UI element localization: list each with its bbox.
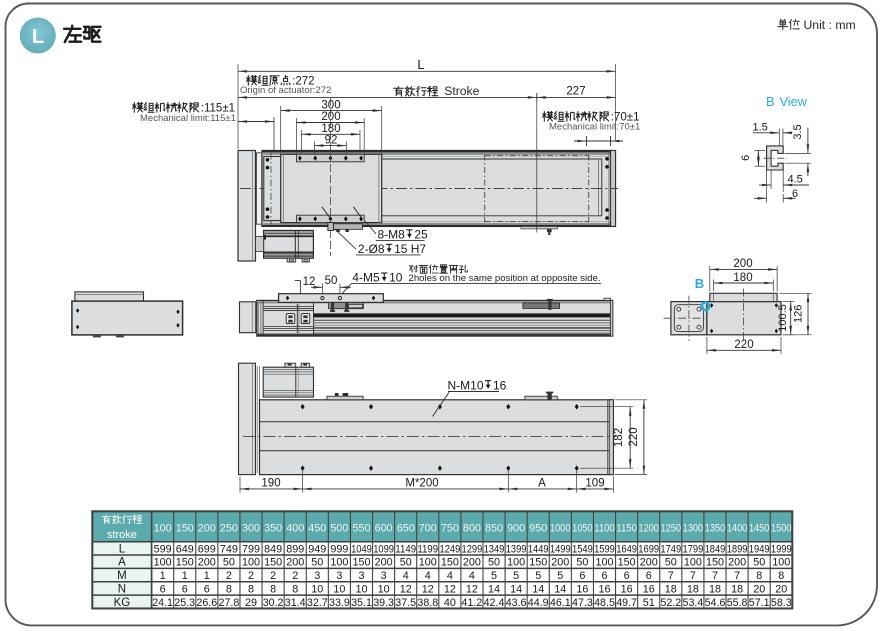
svg-text:1.5: 1.5 — [753, 122, 768, 134]
svg-text:10: 10 — [389, 271, 403, 285]
svg-text:1349: 1349 — [484, 543, 505, 555]
svg-text:6: 6 — [740, 155, 752, 161]
svg-text:5: 5 — [491, 570, 497, 582]
svg-text:5: 5 — [535, 570, 541, 582]
svg-text:2holes on the same position at: 2holes on the same position at opposite … — [409, 273, 601, 284]
svg-text:A: A — [538, 477, 546, 489]
svg-text:50: 50 — [325, 275, 338, 287]
svg-text:1399: 1399 — [506, 543, 527, 555]
svg-text:180: 180 — [321, 123, 340, 135]
svg-text:849: 849 — [264, 543, 282, 555]
svg-text:1249: 1249 — [440, 543, 461, 555]
svg-text:1749: 1749 — [660, 543, 681, 555]
svg-text:227: 227 — [566, 85, 585, 97]
svg-text:1849: 1849 — [705, 543, 726, 555]
svg-text:1649: 1649 — [616, 543, 637, 555]
svg-text:6: 6 — [624, 570, 630, 582]
svg-text:200: 200 — [321, 111, 340, 123]
svg-text:16: 16 — [576, 583, 588, 595]
svg-text:4-M5: 4-M5 — [352, 271, 380, 285]
svg-text:150: 150 — [176, 557, 194, 569]
svg-text:126: 126 — [792, 305, 804, 323]
svg-text:47.3: 47.3 — [572, 597, 593, 609]
svg-text:1: 1 — [160, 570, 166, 582]
svg-text:57.1: 57.1 — [749, 597, 770, 609]
svg-text:50: 50 — [311, 557, 323, 569]
svg-text:stroke: stroke — [107, 529, 137, 541]
svg-text:38.8: 38.8 — [417, 597, 438, 609]
svg-text:7: 7 — [734, 570, 740, 582]
svg-text:12: 12 — [422, 583, 434, 595]
svg-text:200: 200 — [733, 258, 752, 270]
svg-text:5: 5 — [557, 570, 563, 582]
svg-text:200: 200 — [551, 557, 569, 569]
svg-text:1100: 1100 — [594, 523, 615, 535]
svg-text:25.3: 25.3 — [174, 597, 195, 609]
svg-text:6: 6 — [646, 570, 652, 582]
svg-text:10: 10 — [378, 583, 390, 595]
svg-text:Mechanical limit:70±1: Mechanical limit:70±1 — [549, 121, 640, 132]
svg-text:14: 14 — [532, 583, 544, 595]
svg-text:18: 18 — [731, 583, 743, 595]
svg-text:1099: 1099 — [373, 543, 394, 555]
svg-text:3: 3 — [314, 570, 320, 582]
svg-text:100.5: 100.5 — [777, 304, 789, 332]
svg-text:37.5: 37.5 — [395, 597, 416, 609]
svg-text:2: 2 — [292, 570, 298, 582]
svg-text:799: 799 — [242, 543, 260, 555]
svg-text:200: 200 — [728, 557, 746, 569]
svg-text:31.4: 31.4 — [285, 597, 306, 609]
svg-text:1500: 1500 — [771, 523, 792, 535]
svg-text:1699: 1699 — [638, 543, 659, 555]
svg-text:6: 6 — [204, 583, 210, 595]
svg-text:8: 8 — [292, 583, 298, 595]
svg-text:54.6: 54.6 — [705, 597, 726, 609]
svg-text:50: 50 — [576, 557, 588, 569]
svg-text:KG: KG — [114, 597, 131, 609]
svg-text:150: 150 — [529, 557, 547, 569]
svg-text:1799: 1799 — [683, 543, 704, 555]
svg-text:L: L — [417, 57, 424, 72]
svg-text:300: 300 — [242, 523, 260, 535]
svg-text:18: 18 — [665, 583, 677, 595]
svg-text:200: 200 — [375, 557, 393, 569]
svg-text:1: 1 — [204, 570, 210, 582]
svg-text:6: 6 — [182, 583, 188, 595]
svg-text:50: 50 — [488, 557, 500, 569]
svg-text:150: 150 — [264, 557, 282, 569]
svg-text:8: 8 — [226, 583, 232, 595]
svg-text:Stroke: Stroke — [444, 84, 479, 98]
svg-text:100: 100 — [772, 557, 790, 569]
svg-text:41.2: 41.2 — [462, 597, 483, 609]
svg-text:6: 6 — [601, 570, 607, 582]
svg-text:42.4: 42.4 — [484, 597, 505, 609]
svg-text:182: 182 — [613, 428, 625, 447]
svg-text:200: 200 — [286, 557, 304, 569]
svg-text:999: 999 — [330, 543, 348, 555]
svg-text:699: 699 — [198, 543, 216, 555]
svg-text:50: 50 — [665, 557, 677, 569]
svg-text:1450: 1450 — [749, 523, 770, 535]
svg-text:7: 7 — [690, 570, 696, 582]
svg-text:650: 650 — [397, 523, 415, 535]
svg-text:B: B — [695, 276, 704, 291]
svg-text:300: 300 — [321, 99, 340, 111]
svg-text:1899: 1899 — [727, 543, 748, 555]
svg-text:N: N — [118, 583, 126, 595]
svg-text:150: 150 — [352, 557, 370, 569]
svg-text:52.2: 52.2 — [660, 597, 681, 609]
svg-text:N-M10: N-M10 — [448, 378, 484, 392]
svg-text:150: 150 — [618, 557, 636, 569]
svg-text:6: 6 — [579, 570, 585, 582]
svg-text:3: 3 — [381, 570, 387, 582]
svg-text:1599: 1599 — [594, 543, 615, 555]
svg-text:Origin of actuator:272: Origin of actuator:272 — [240, 85, 331, 96]
svg-text:749: 749 — [220, 543, 238, 555]
svg-text:100: 100 — [507, 557, 525, 569]
svg-text:12: 12 — [400, 583, 412, 595]
svg-text:14: 14 — [488, 583, 500, 595]
svg-text:100: 100 — [242, 557, 260, 569]
svg-text:A: A — [118, 557, 126, 569]
svg-text:250: 250 — [220, 523, 238, 535]
svg-text:55.8: 55.8 — [727, 597, 748, 609]
svg-text:View: View — [780, 94, 808, 109]
svg-text:8: 8 — [270, 583, 276, 595]
svg-text:40: 40 — [444, 597, 456, 609]
svg-text:46.1: 46.1 — [550, 597, 571, 609]
svg-text:Unit : mm: Unit : mm — [804, 18, 856, 32]
svg-text:24.1: 24.1 — [152, 597, 173, 609]
svg-text:800: 800 — [463, 523, 481, 535]
svg-text:3: 3 — [336, 570, 342, 582]
svg-text:1: 1 — [182, 570, 188, 582]
svg-text:850: 850 — [485, 523, 503, 535]
svg-text:100: 100 — [595, 557, 613, 569]
svg-text:29: 29 — [245, 597, 257, 609]
svg-text:16: 16 — [643, 583, 655, 595]
svg-text:2: 2 — [270, 570, 276, 582]
svg-text:109: 109 — [585, 477, 604, 489]
svg-text:M: M — [117, 570, 127, 582]
svg-text:15 H7: 15 H7 — [394, 242, 426, 256]
svg-text:50: 50 — [223, 557, 235, 569]
svg-text:M*200: M*200 — [405, 477, 438, 489]
svg-text:1549: 1549 — [572, 543, 593, 555]
svg-text:1049: 1049 — [351, 543, 372, 555]
svg-text:14: 14 — [510, 583, 522, 595]
svg-text:L: L — [119, 543, 126, 555]
svg-text:35.1: 35.1 — [351, 597, 372, 609]
svg-text:200: 200 — [198, 523, 216, 535]
svg-text:1949: 1949 — [749, 543, 770, 555]
svg-text:1999: 1999 — [771, 543, 792, 555]
svg-text:18: 18 — [687, 583, 699, 595]
svg-text:220: 220 — [734, 339, 753, 351]
svg-text:1050: 1050 — [572, 523, 593, 535]
svg-text:33.9: 33.9 — [329, 597, 350, 609]
svg-text:100: 100 — [330, 557, 348, 569]
svg-text:1400: 1400 — [727, 523, 748, 535]
svg-text:750: 750 — [441, 523, 459, 535]
svg-text:7: 7 — [668, 570, 674, 582]
svg-text:L: L — [32, 26, 44, 48]
svg-text:18: 18 — [709, 583, 721, 595]
svg-text:26.6: 26.6 — [196, 597, 217, 609]
svg-text:44.9: 44.9 — [528, 597, 549, 609]
svg-text:6: 6 — [792, 188, 798, 200]
svg-text:16: 16 — [598, 583, 610, 595]
svg-text:1200: 1200 — [638, 523, 659, 535]
svg-text:10: 10 — [333, 583, 345, 595]
svg-text:4: 4 — [425, 570, 431, 582]
svg-text:8: 8 — [248, 583, 254, 595]
svg-text:39.3: 39.3 — [373, 597, 394, 609]
svg-text:B: B — [766, 94, 775, 109]
svg-text:10: 10 — [311, 583, 323, 595]
svg-text:50: 50 — [400, 557, 412, 569]
svg-text:1250: 1250 — [661, 523, 682, 535]
svg-text:600: 600 — [375, 523, 393, 535]
svg-text:16: 16 — [493, 378, 507, 392]
svg-text:899: 899 — [286, 543, 304, 555]
svg-text:49.7: 49.7 — [616, 597, 637, 609]
svg-text:700: 700 — [419, 523, 437, 535]
svg-text:53.4: 53.4 — [683, 597, 704, 609]
svg-text:8: 8 — [756, 570, 762, 582]
svg-text:150: 150 — [706, 557, 724, 569]
svg-text:7: 7 — [712, 570, 718, 582]
svg-text:20: 20 — [775, 583, 787, 595]
svg-text:649: 649 — [176, 543, 194, 555]
svg-text:1000: 1000 — [550, 523, 571, 535]
svg-text:Mechanical limit:115±1: Mechanical limit:115±1 — [140, 113, 236, 124]
svg-text:14: 14 — [554, 583, 566, 595]
svg-text:2: 2 — [248, 570, 254, 582]
svg-text:200: 200 — [463, 557, 481, 569]
svg-text:58.3: 58.3 — [771, 597, 792, 609]
svg-text:51: 51 — [643, 597, 655, 609]
svg-text:599: 599 — [154, 543, 172, 555]
svg-text:220: 220 — [628, 427, 640, 446]
svg-text:350: 350 — [264, 523, 282, 535]
svg-text:200: 200 — [198, 557, 216, 569]
svg-text:1499: 1499 — [550, 543, 571, 555]
svg-text:4: 4 — [447, 570, 453, 582]
svg-text:10: 10 — [355, 583, 367, 595]
svg-text:16: 16 — [621, 583, 633, 595]
svg-text:12: 12 — [466, 583, 478, 595]
svg-text:8-M8: 8-M8 — [378, 228, 406, 242]
svg-text:6: 6 — [160, 583, 166, 595]
svg-text:20: 20 — [753, 583, 765, 595]
svg-text:48.5: 48.5 — [594, 597, 615, 609]
svg-text:400: 400 — [286, 523, 304, 535]
svg-text:3.5: 3.5 — [792, 124, 804, 139]
svg-text:550: 550 — [352, 523, 370, 535]
svg-text:3: 3 — [358, 570, 364, 582]
svg-text:450: 450 — [308, 523, 326, 535]
svg-text:8: 8 — [778, 570, 784, 582]
svg-text:4: 4 — [469, 570, 475, 582]
svg-text:200: 200 — [640, 557, 658, 569]
svg-text:32.7: 32.7 — [307, 597, 328, 609]
svg-text:27.8: 27.8 — [219, 597, 240, 609]
svg-text:1299: 1299 — [462, 543, 483, 555]
svg-text:1150: 1150 — [616, 523, 637, 535]
svg-text:43.6: 43.6 — [506, 597, 527, 609]
svg-text:900: 900 — [507, 523, 525, 535]
svg-text:100: 100 — [154, 557, 172, 569]
svg-text:180: 180 — [733, 272, 752, 284]
svg-text:4: 4 — [403, 570, 409, 582]
svg-text:190: 190 — [261, 477, 280, 489]
svg-text:1350: 1350 — [705, 523, 726, 535]
svg-text:1149: 1149 — [395, 543, 416, 555]
svg-text:100: 100 — [154, 523, 172, 535]
svg-text:500: 500 — [330, 523, 348, 535]
svg-text:100: 100 — [419, 557, 437, 569]
svg-text:950: 950 — [529, 523, 547, 535]
svg-text:1199: 1199 — [417, 543, 438, 555]
svg-text:92: 92 — [325, 134, 338, 146]
svg-text:150: 150 — [176, 523, 194, 535]
svg-text:150: 150 — [441, 557, 459, 569]
svg-text:5: 5 — [513, 570, 519, 582]
svg-text:2-Ø8: 2-Ø8 — [358, 242, 385, 256]
svg-text:50: 50 — [753, 557, 765, 569]
svg-text:30.2: 30.2 — [263, 597, 284, 609]
svg-text:12: 12 — [444, 583, 456, 595]
svg-text:25: 25 — [414, 228, 428, 242]
svg-text:1449: 1449 — [528, 543, 549, 555]
svg-text:949: 949 — [308, 543, 326, 555]
svg-text:100: 100 — [684, 557, 702, 569]
svg-text:2: 2 — [226, 570, 232, 582]
svg-text:1300: 1300 — [683, 523, 704, 535]
svg-text:4.5: 4.5 — [788, 174, 803, 186]
